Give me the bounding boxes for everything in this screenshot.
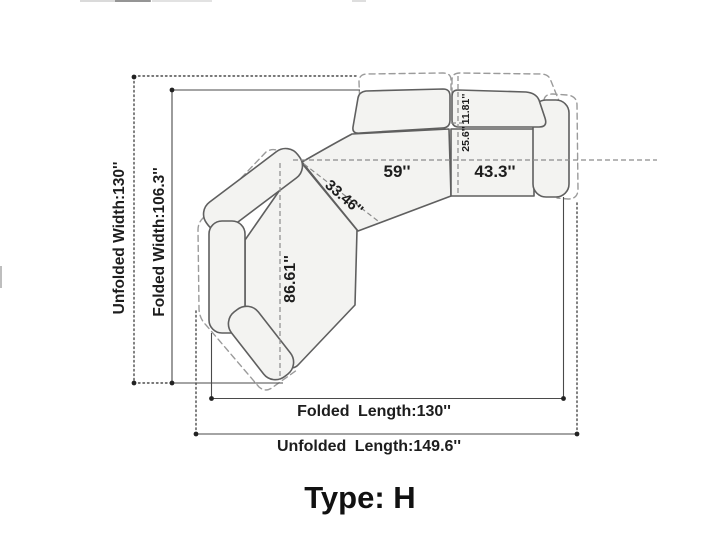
sofa-dimension-diagram: Unfolded Width:130'' Folded Width:106.3'…: [0, 0, 720, 553]
back-cushion-middle-shape: [353, 89, 450, 133]
sofa-type-label: Type: H: [304, 480, 415, 515]
label-middle-seat-width: 59'': [384, 162, 411, 181]
dim-endpoint: [575, 432, 580, 437]
label-unfolded-length: Unfolded Length:149.6'': [277, 438, 461, 455]
label-folded-width: Folded Width:106.3'': [151, 167, 168, 316]
label-right-seat-width: 43.3'': [474, 162, 515, 181]
dim-endpoint: [209, 396, 214, 401]
diagram-canvas: Unfolded Width:130'' Folded Width:106.3'…: [0, 0, 720, 553]
dim-endpoint: [132, 381, 137, 386]
dim-endpoint: [170, 88, 175, 93]
label-chaise-length: 86.61'': [282, 255, 299, 303]
label-backrest-depth: 25.6'': [460, 126, 472, 151]
label-folded-length: Folded Length:130'': [297, 403, 451, 420]
label-backrest-fold-depth: 11.81'': [460, 94, 472, 125]
dim-endpoint: [170, 381, 175, 386]
dim-endpoint: [561, 396, 566, 401]
dim-endpoint: [194, 432, 199, 437]
dim-endpoint: [132, 75, 137, 80]
label-unfolded-width: Unfolded Width:130'': [111, 162, 128, 315]
